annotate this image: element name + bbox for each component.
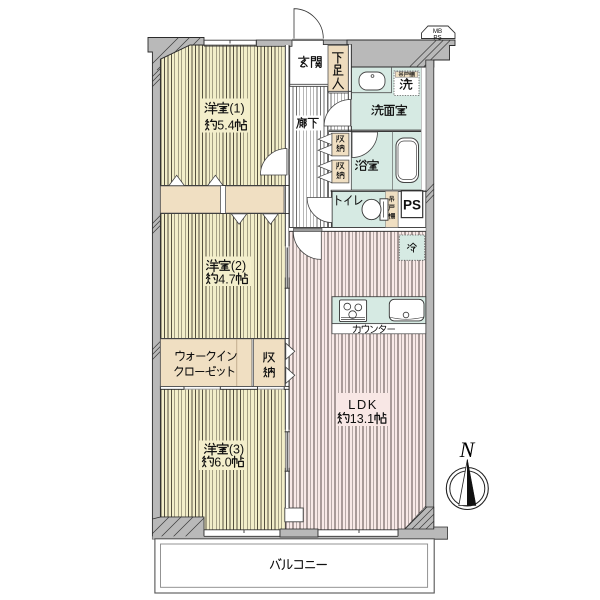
svg-text:(3): (3) (229, 443, 244, 457)
svg-text:LDK: LDK (348, 397, 378, 412)
svg-text:PS: PS (403, 198, 421, 213)
svg-text:PS: PS (433, 34, 441, 41)
svg-text:(2): (2) (231, 259, 246, 273)
svg-text:5.4: 5.4 (217, 119, 234, 133)
svg-text:6.0: 6.0 (214, 456, 231, 470)
svg-text:13.1: 13.1 (350, 412, 374, 426)
svg-text:4.7: 4.7 (218, 272, 235, 286)
svg-text:N: N (459, 437, 476, 462)
svg-text:(1): (1) (229, 102, 244, 116)
